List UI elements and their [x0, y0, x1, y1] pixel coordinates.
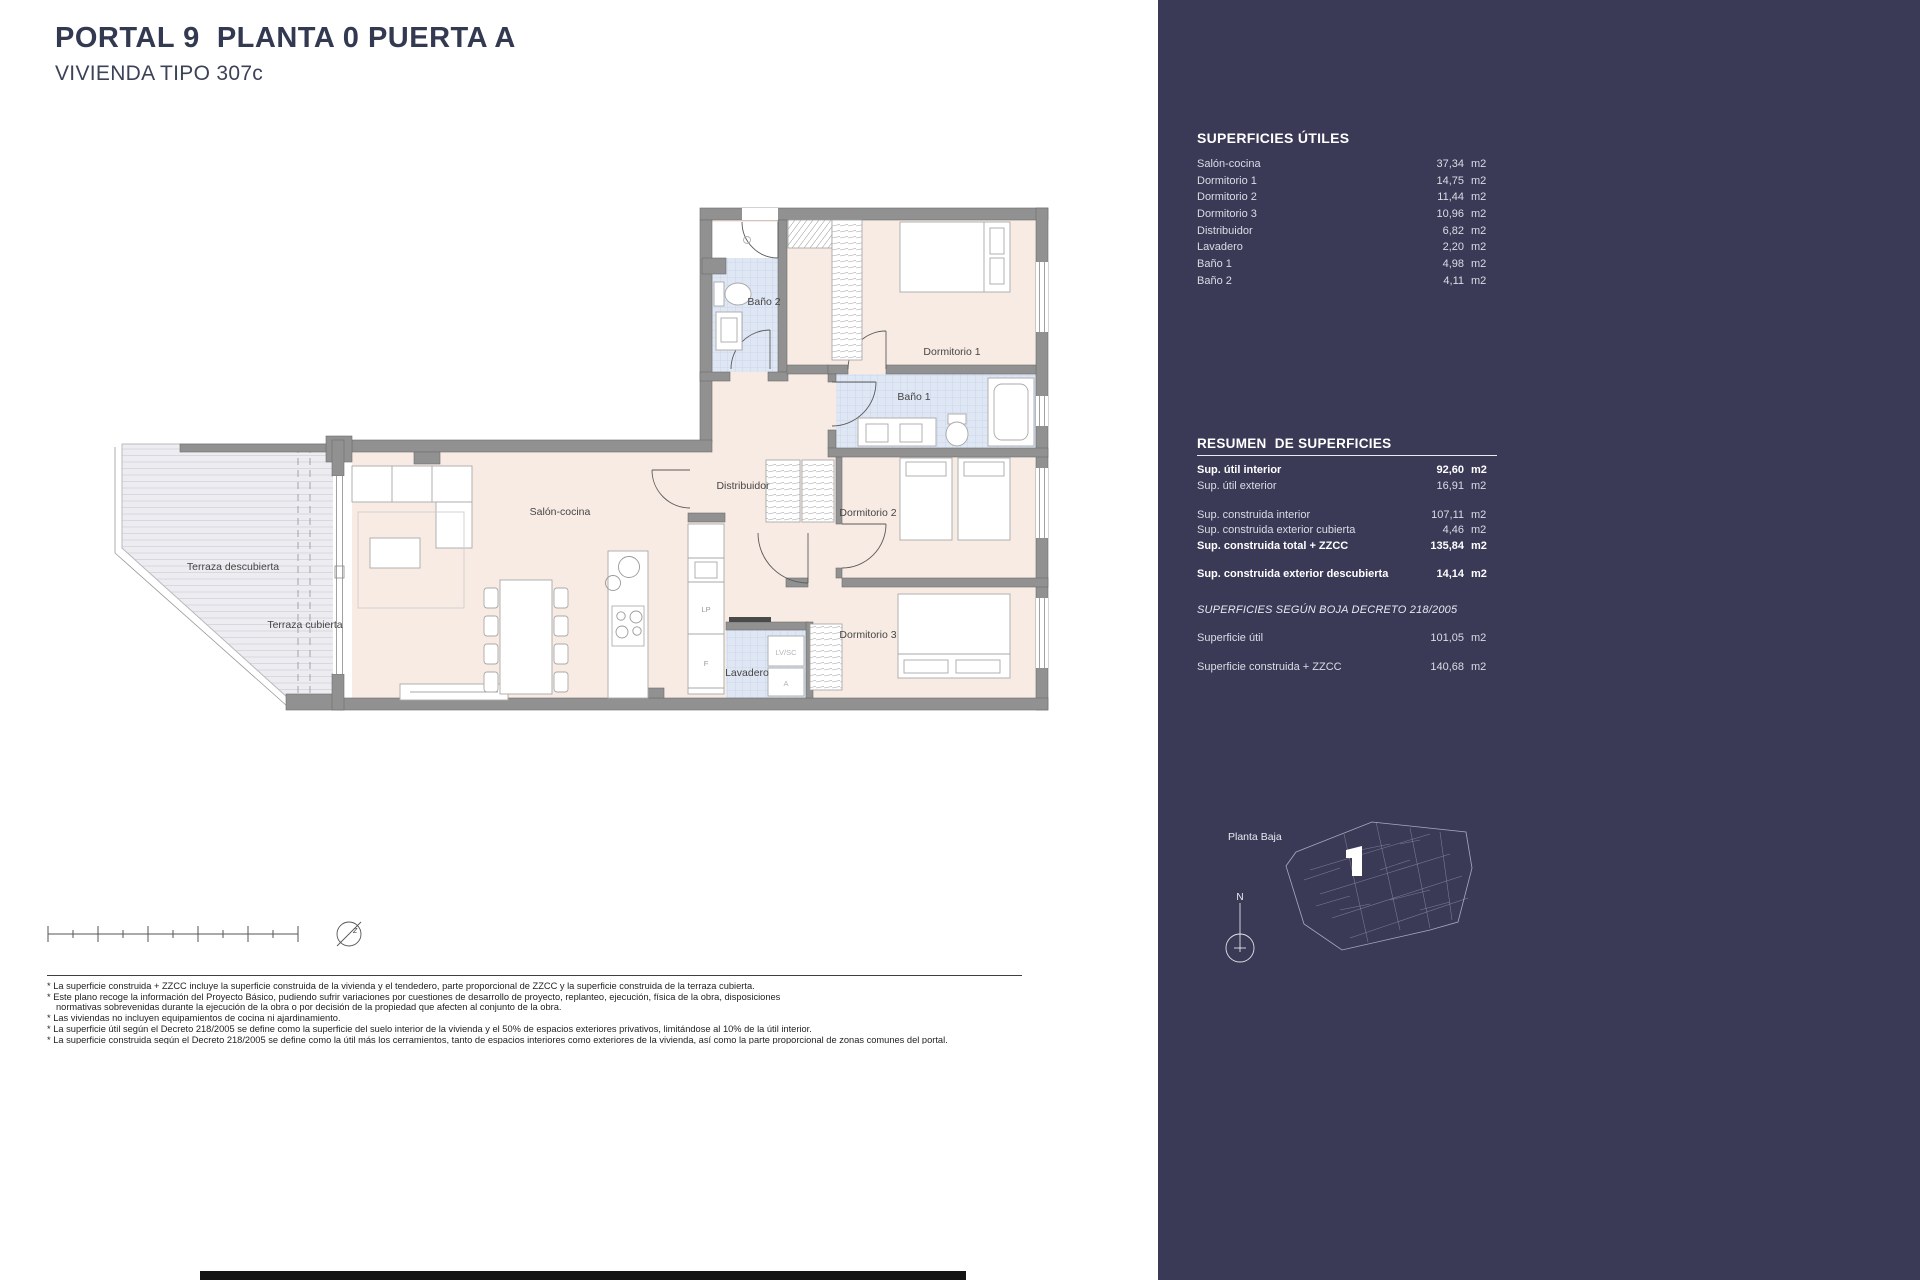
page: PORTAL 9 PLANTA 0 PUERTA A VIVIENDA TIPO… — [0, 0, 1920, 1280]
coffee-table — [370, 538, 420, 568]
room-label-bano2: Baño 2 — [747, 296, 780, 308]
resumen-underline — [1197, 455, 1497, 456]
compass-icon: N — [1220, 886, 1274, 978]
boja-title: SUPERFICIES SEGÚN BOJA DECRETO 218/2005 — [1197, 604, 1457, 616]
appliance-label-lvsc: LV/SC — [775, 648, 797, 657]
highlighted-unit-marker — [1346, 846, 1362, 876]
sidebar: SUPERFICIES ÚTILES Salón-cocina37,34m2 D… — [1158, 0, 1920, 1280]
room-label-distribuidor: Distribuidor — [716, 480, 770, 492]
appliance-label-lp: LP — [701, 605, 710, 614]
boja-row: Superficie útil101,05m2 — [1197, 632, 1497, 644]
area-row: Dormitorio 211,44m2 — [1197, 191, 1497, 203]
appliance-label-f: F — [704, 659, 709, 668]
superficies-utiles-title: SUPERFICIES ÚTILES — [1197, 130, 1349, 146]
room-label-dormitorio2: Dormitorio 2 — [839, 507, 896, 519]
room-label-bano1: Baño 1 — [897, 391, 930, 403]
room-label-salon: Salón-cocina — [530, 506, 591, 518]
footnote-line: * La superficie construida + ZZCC incluy… — [47, 981, 1022, 992]
footnote-line: normativas sobrevenidas durante la ejecu… — [47, 1002, 1022, 1013]
kitchen-island — [606, 551, 649, 698]
summary-row: Sup. construida exterior cubierta4,46m2 — [1197, 524, 1497, 536]
bottom-clipped-bar — [200, 1271, 966, 1280]
area-row: Baño 14,98m2 — [1197, 258, 1497, 270]
summary-row: Sup. útil interior92,60m2 — [1197, 464, 1497, 476]
bed-dormitorio-3 — [898, 594, 1010, 678]
room-label-terraza-cubierta: Terraza cubierta — [267, 619, 342, 631]
footnote-line: * La superficie construida según el Decr… — [47, 1035, 1022, 1044]
footnotes: * La superficie construida + ZZCC incluy… — [47, 975, 1022, 1044]
summary-row: Sup. construida total + ZZCC135,84m2 — [1197, 540, 1497, 552]
boja-row: Superficie construida + ZZCC140,68m2 — [1197, 661, 1497, 673]
room-label-dormitorio1: Dormitorio 1 — [923, 346, 980, 358]
area-row: Dormitorio 114,75m2 — [1197, 175, 1497, 187]
terrace-area — [115, 444, 338, 706]
footnote-line: * Las viviendas no incluyen equipamiento… — [47, 1013, 1022, 1024]
bed-dormitorio-1 — [900, 222, 1010, 292]
summary-row: Sup. construida exterior descubierta14,1… — [1197, 568, 1497, 580]
area-row: Dormitorio 310,96m2 — [1197, 208, 1497, 220]
room-label-terraza-descubierta: Terraza descubierta — [187, 561, 279, 573]
footnote-line: * La superficie útil según el Decreto 21… — [47, 1024, 1022, 1035]
room-label-dormitorio3: Dormitorio 3 — [839, 629, 896, 641]
laundry-sliding-door — [729, 617, 771, 622]
site-key-plan — [1280, 810, 1490, 965]
area-row: Salón-cocina37,34m2 — [1197, 158, 1497, 170]
area-row: Baño 24,11m2 — [1197, 275, 1497, 287]
footnote-line: * Este plano recoge la información del P… — [47, 992, 1022, 1003]
summary-row: Sup. construida interior107,11m2 — [1197, 509, 1497, 521]
room-label-lavadero: Lavadero — [725, 667, 769, 679]
resumen-title: RESUMEN DE SUPERFICIES — [1197, 436, 1391, 451]
summary-row: Sup. útil exterior16,91m2 — [1197, 480, 1497, 492]
floor-plan: Terraza descubierta Terraza cubierta Sal… — [0, 0, 1158, 1280]
area-row: Lavadero2,20m2 — [1197, 241, 1497, 253]
svg-text:N: N — [1236, 892, 1243, 903]
area-row: Distribuidor6,82m2 — [1197, 225, 1497, 237]
key-plan-label: Planta Baja — [1228, 831, 1282, 843]
scale-bar — [48, 926, 298, 942]
appliance-label-a: A — [783, 679, 788, 688]
svg-text:z: z — [352, 925, 358, 935]
north-z-icon: z — [337, 922, 361, 946]
